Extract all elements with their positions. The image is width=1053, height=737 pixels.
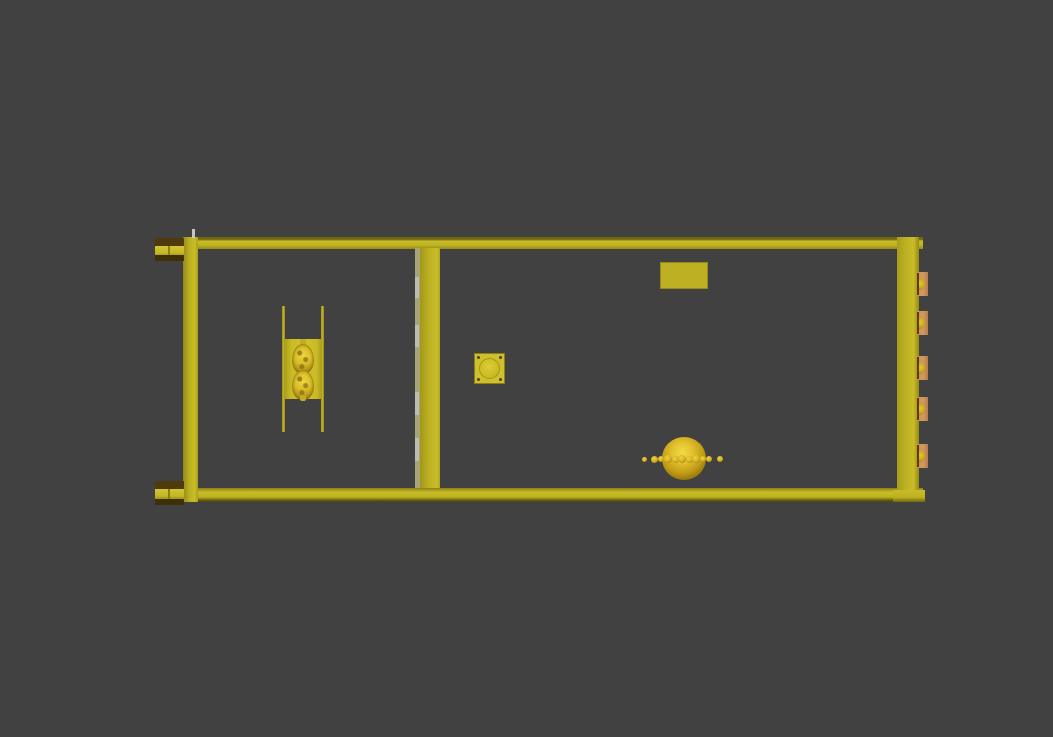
port-dome-icon xyxy=(919,450,925,462)
docking-port[interactable] xyxy=(917,356,928,380)
chain-bead xyxy=(664,455,672,463)
port-dome-icon xyxy=(919,278,925,290)
docking-port[interactable] xyxy=(917,397,928,421)
corner-highlight-mark xyxy=(192,229,195,238)
frame-right-wall xyxy=(897,237,919,501)
hatch-circle xyxy=(479,358,500,379)
frame-bottom-wall xyxy=(183,488,923,502)
chain-bead xyxy=(692,455,700,463)
port-dome-icon xyxy=(919,403,925,415)
bolt-icon xyxy=(499,356,502,359)
bolt-icon xyxy=(499,378,502,381)
chain-bead xyxy=(717,456,723,462)
coupler-shadow-strip xyxy=(155,481,184,489)
docking-port[interactable] xyxy=(917,272,928,296)
frame-top-wall xyxy=(183,237,923,249)
coupler-shadow-strip xyxy=(155,255,184,261)
viewport-3d[interactable] xyxy=(0,0,1053,737)
coupler-block-bottom[interactable] xyxy=(155,481,184,505)
coupler-seam xyxy=(168,489,170,499)
hinge-mark xyxy=(415,392,419,415)
port-dome-icon xyxy=(919,362,925,374)
roof-panel[interactable] xyxy=(660,262,708,289)
coupler-shadow-strip xyxy=(155,238,184,246)
chain-bead xyxy=(642,457,647,462)
hinge-mark xyxy=(415,438,419,461)
chain-bead xyxy=(678,455,686,463)
bolt-icon xyxy=(477,378,480,381)
chain-bead xyxy=(651,456,658,463)
divider-wall xyxy=(420,248,440,488)
pod-stem xyxy=(300,395,306,401)
hinge-mark xyxy=(415,325,419,347)
hinge-mark xyxy=(415,277,419,298)
docking-port[interactable] xyxy=(917,311,928,335)
port-dome-icon xyxy=(919,317,925,329)
frame-right-wall-cap xyxy=(893,490,925,502)
coupler-shadow-strip xyxy=(155,499,184,505)
coupler-block-top[interactable] xyxy=(155,238,184,261)
chain-bead xyxy=(706,456,712,462)
frame-left-wall xyxy=(183,237,198,502)
docking-port[interactable] xyxy=(917,444,928,468)
bolt-icon xyxy=(477,356,480,359)
hatch-plate[interactable] xyxy=(474,353,505,384)
